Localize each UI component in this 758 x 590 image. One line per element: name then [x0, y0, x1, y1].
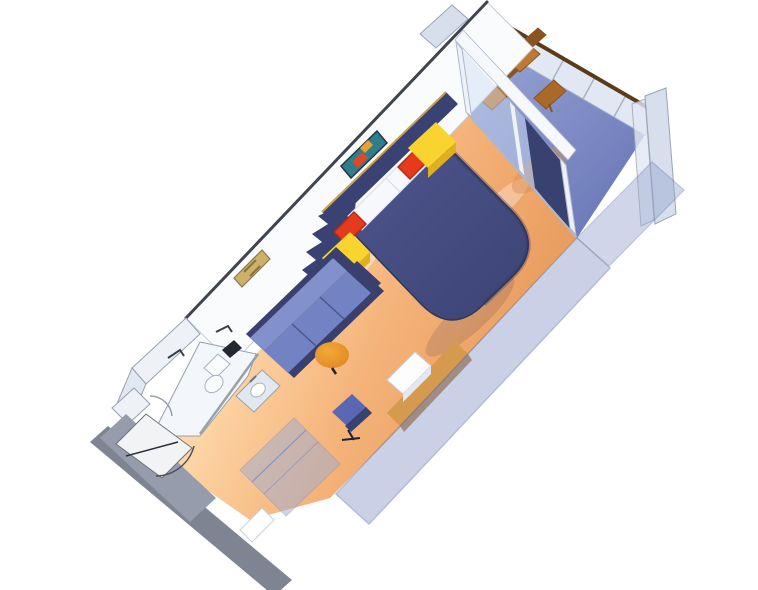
floorplan-svg [0, 0, 758, 590]
ottoman-top [315, 342, 349, 368]
stateroom-render [0, 0, 758, 590]
